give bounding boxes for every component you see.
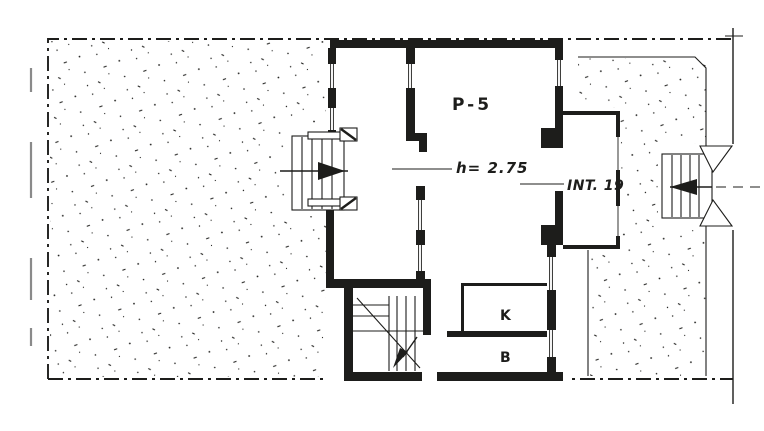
- stair-post-hatched: [340, 128, 357, 141]
- floor-plan-drawing: P-5 h= 2.75 INT. 19 K B: [0, 0, 764, 431]
- floor-plan-sheet: P-5 h= 2.75 INT. 19 K B: [0, 0, 764, 431]
- stair-post-hatched: [340, 197, 357, 210]
- bathroom-label: B: [500, 350, 511, 366]
- unit-label: INT. 19: [567, 178, 624, 194]
- kitchen-label: K: [500, 308, 512, 324]
- exterior-stairs-right: [662, 146, 762, 226]
- floor-label: P-5: [452, 95, 492, 115]
- height-note-label: h= 2.75: [456, 159, 528, 177]
